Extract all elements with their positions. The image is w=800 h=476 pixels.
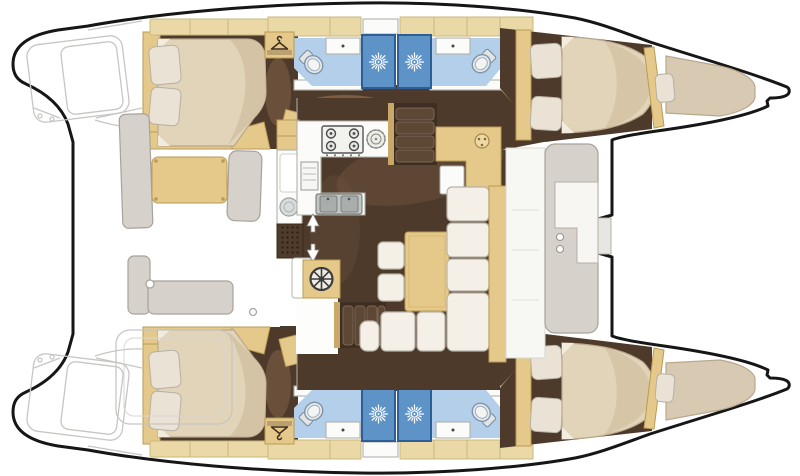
stairs-to-starboard-hull [388,103,437,165]
forward-passage [506,148,545,358]
settee-cushion [447,223,489,257]
double-sink-icon [316,194,362,214]
forward-lounge [506,144,611,358]
catamaran-floor-plan [0,0,800,476]
stool-cushion [378,274,404,301]
floor-plan-stage [0,0,800,476]
settee-corner-cushion [447,293,489,351]
settee-back-cabinet [489,186,506,362]
settee-end-cushion [360,321,379,351]
settee-cushion [447,187,489,221]
floor-grate-dots [279,226,301,256]
cockpit-table [152,157,227,203]
wet-bar-cabinet [277,136,299,151]
round-sink-icon [280,198,298,216]
stair-rail [388,103,394,165]
forward-door-step [598,218,611,254]
stair-tread [396,150,434,162]
settee-cushion [447,259,489,291]
dinette-table [405,232,449,311]
settee-cushion [381,312,415,351]
cup-holder [557,246,564,253]
round-burner-icon [367,130,385,148]
wet-bar-cabinet [277,120,299,136]
cockpit-bench [119,114,153,229]
stair-tread [343,306,353,345]
cup-holder [557,234,564,241]
stair-tread [396,136,434,148]
settee-cushion [417,312,445,351]
helm-wheel-icon [311,268,333,290]
stair-tread [396,122,434,134]
cockpit-bench [148,281,233,314]
galley-appliance [301,162,318,190]
helm-console [303,260,340,298]
nav-instrument-icon [475,134,489,148]
deck-fitting [250,309,257,316]
cockpit-bench [227,150,262,221]
stool-cushion [378,242,404,269]
counter-panel [280,154,299,192]
deck-fitting [146,280,154,288]
stair-rail [334,302,340,348]
stair-tread [396,108,434,120]
